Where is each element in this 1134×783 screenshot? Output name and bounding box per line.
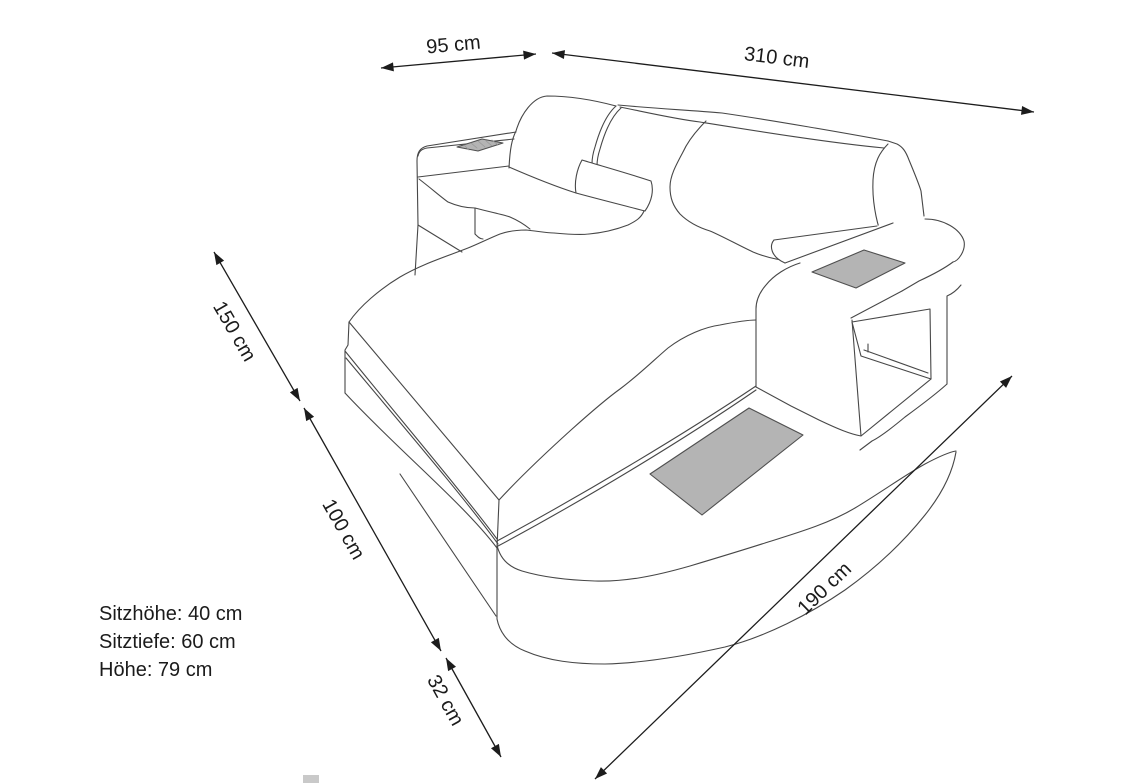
svg-text:Sitztiefe: 60 cm: Sitztiefe: 60 cm bbox=[99, 631, 236, 653]
svg-text:Höhe: 79 cm: Höhe: 79 cm bbox=[99, 659, 212, 681]
svg-text:Sitzhöhe: 40 cm: Sitzhöhe: 40 cm bbox=[99, 603, 242, 625]
